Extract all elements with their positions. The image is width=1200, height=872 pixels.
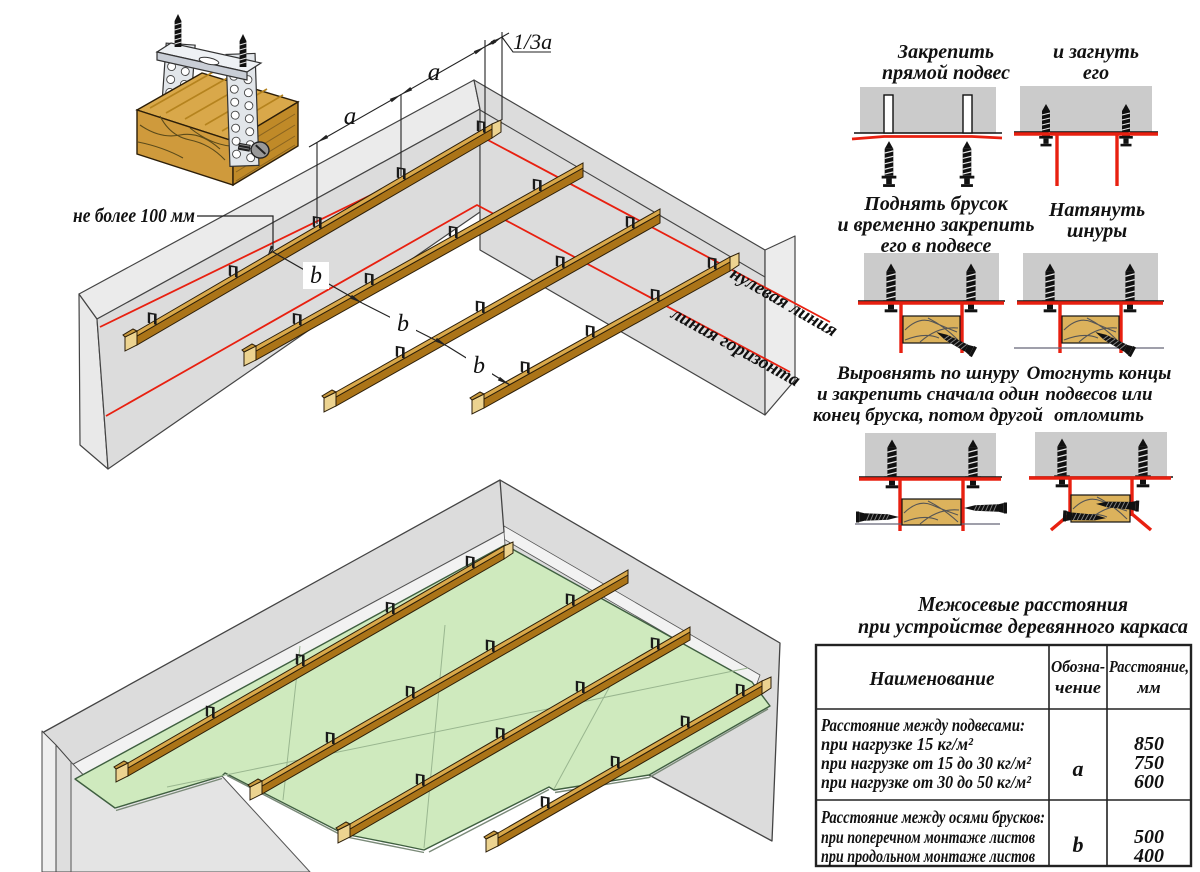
svg-text:b: b	[310, 263, 322, 289]
svg-text:b: b	[397, 311, 409, 337]
svg-text:при продольном монтаже листов: при продольном монтаже листов	[821, 846, 1035, 866]
svg-text:мм: мм	[1136, 678, 1161, 697]
svg-text:отломить: отломить	[1054, 405, 1144, 426]
svg-text:и закрепить сначала один: и закрепить сначала один	[817, 384, 1039, 405]
svg-text:a: a	[344, 103, 357, 130]
svg-text:Расстояние,: Расстояние,	[1108, 657, 1189, 676]
svg-text:600: 600	[1134, 771, 1164, 793]
svg-text:Расстояние между подвесами:: Расстояние между подвесами:	[820, 715, 1025, 735]
svg-text:его: его	[1083, 62, 1109, 84]
svg-text:Закрепить: Закрепить	[897, 41, 994, 63]
svg-text:Обозна-: Обозна-	[1051, 657, 1105, 676]
svg-text:Поднять брусок: Поднять брусок	[863, 193, 1008, 215]
svg-text:и временно закрепить: и временно закрепить	[838, 214, 1035, 236]
svg-text:400: 400	[1133, 845, 1164, 867]
svg-text:Наименование: Наименование	[869, 668, 995, 690]
svg-text:b: b	[473, 353, 485, 379]
svg-text:и загнуть: и загнуть	[1053, 41, 1139, 63]
svg-text:Отогнуть концы: Отогнуть концы	[1027, 363, 1172, 384]
svg-text:прямой подвес: прямой подвес	[882, 62, 1010, 84]
svg-text:при поперечном монтаже листов: при поперечном монтаже листов	[821, 827, 1035, 847]
svg-text:подвесов или: подвесов или	[1045, 384, 1152, 405]
svg-text:шнуры: шнуры	[1067, 220, 1127, 242]
svg-text:a: a	[1073, 756, 1084, 781]
svg-text:Межосевые расстояния: Межосевые расстояния	[917, 592, 1128, 616]
svg-text:конец бруска, потом другой: конец бруска, потом другой	[813, 405, 1043, 426]
svg-text:a: a	[428, 59, 441, 86]
svg-text:Натянуть: Натянуть	[1048, 199, 1145, 221]
svg-text:не более 100 мм: не более 100 мм	[73, 205, 195, 227]
svg-text:при нагрузке от 15 до 30 кг/м²: при нагрузке от 15 до 30 кг/м²	[821, 753, 1032, 773]
svg-text:чение: чение	[1055, 678, 1101, 697]
svg-text:b: b	[1073, 832, 1084, 857]
svg-text:при нагрузке 15 кг/м²: при нагрузке 15 кг/м²	[821, 734, 974, 754]
svg-text:Выровнять по шнуру: Выровнять по шнуру	[836, 363, 1020, 384]
svg-text:1/3a: 1/3a	[513, 29, 552, 54]
svg-text:при устройстве деревянного кар: при устройстве деревянного каркаса	[858, 614, 1188, 638]
svg-text:Расстояние между осями брусков: Расстояние между осями брусков:	[820, 807, 1045, 827]
svg-text:при нагрузке от 30 до 50 кг/м²: при нагрузке от 30 до 50 кг/м²	[821, 772, 1032, 792]
